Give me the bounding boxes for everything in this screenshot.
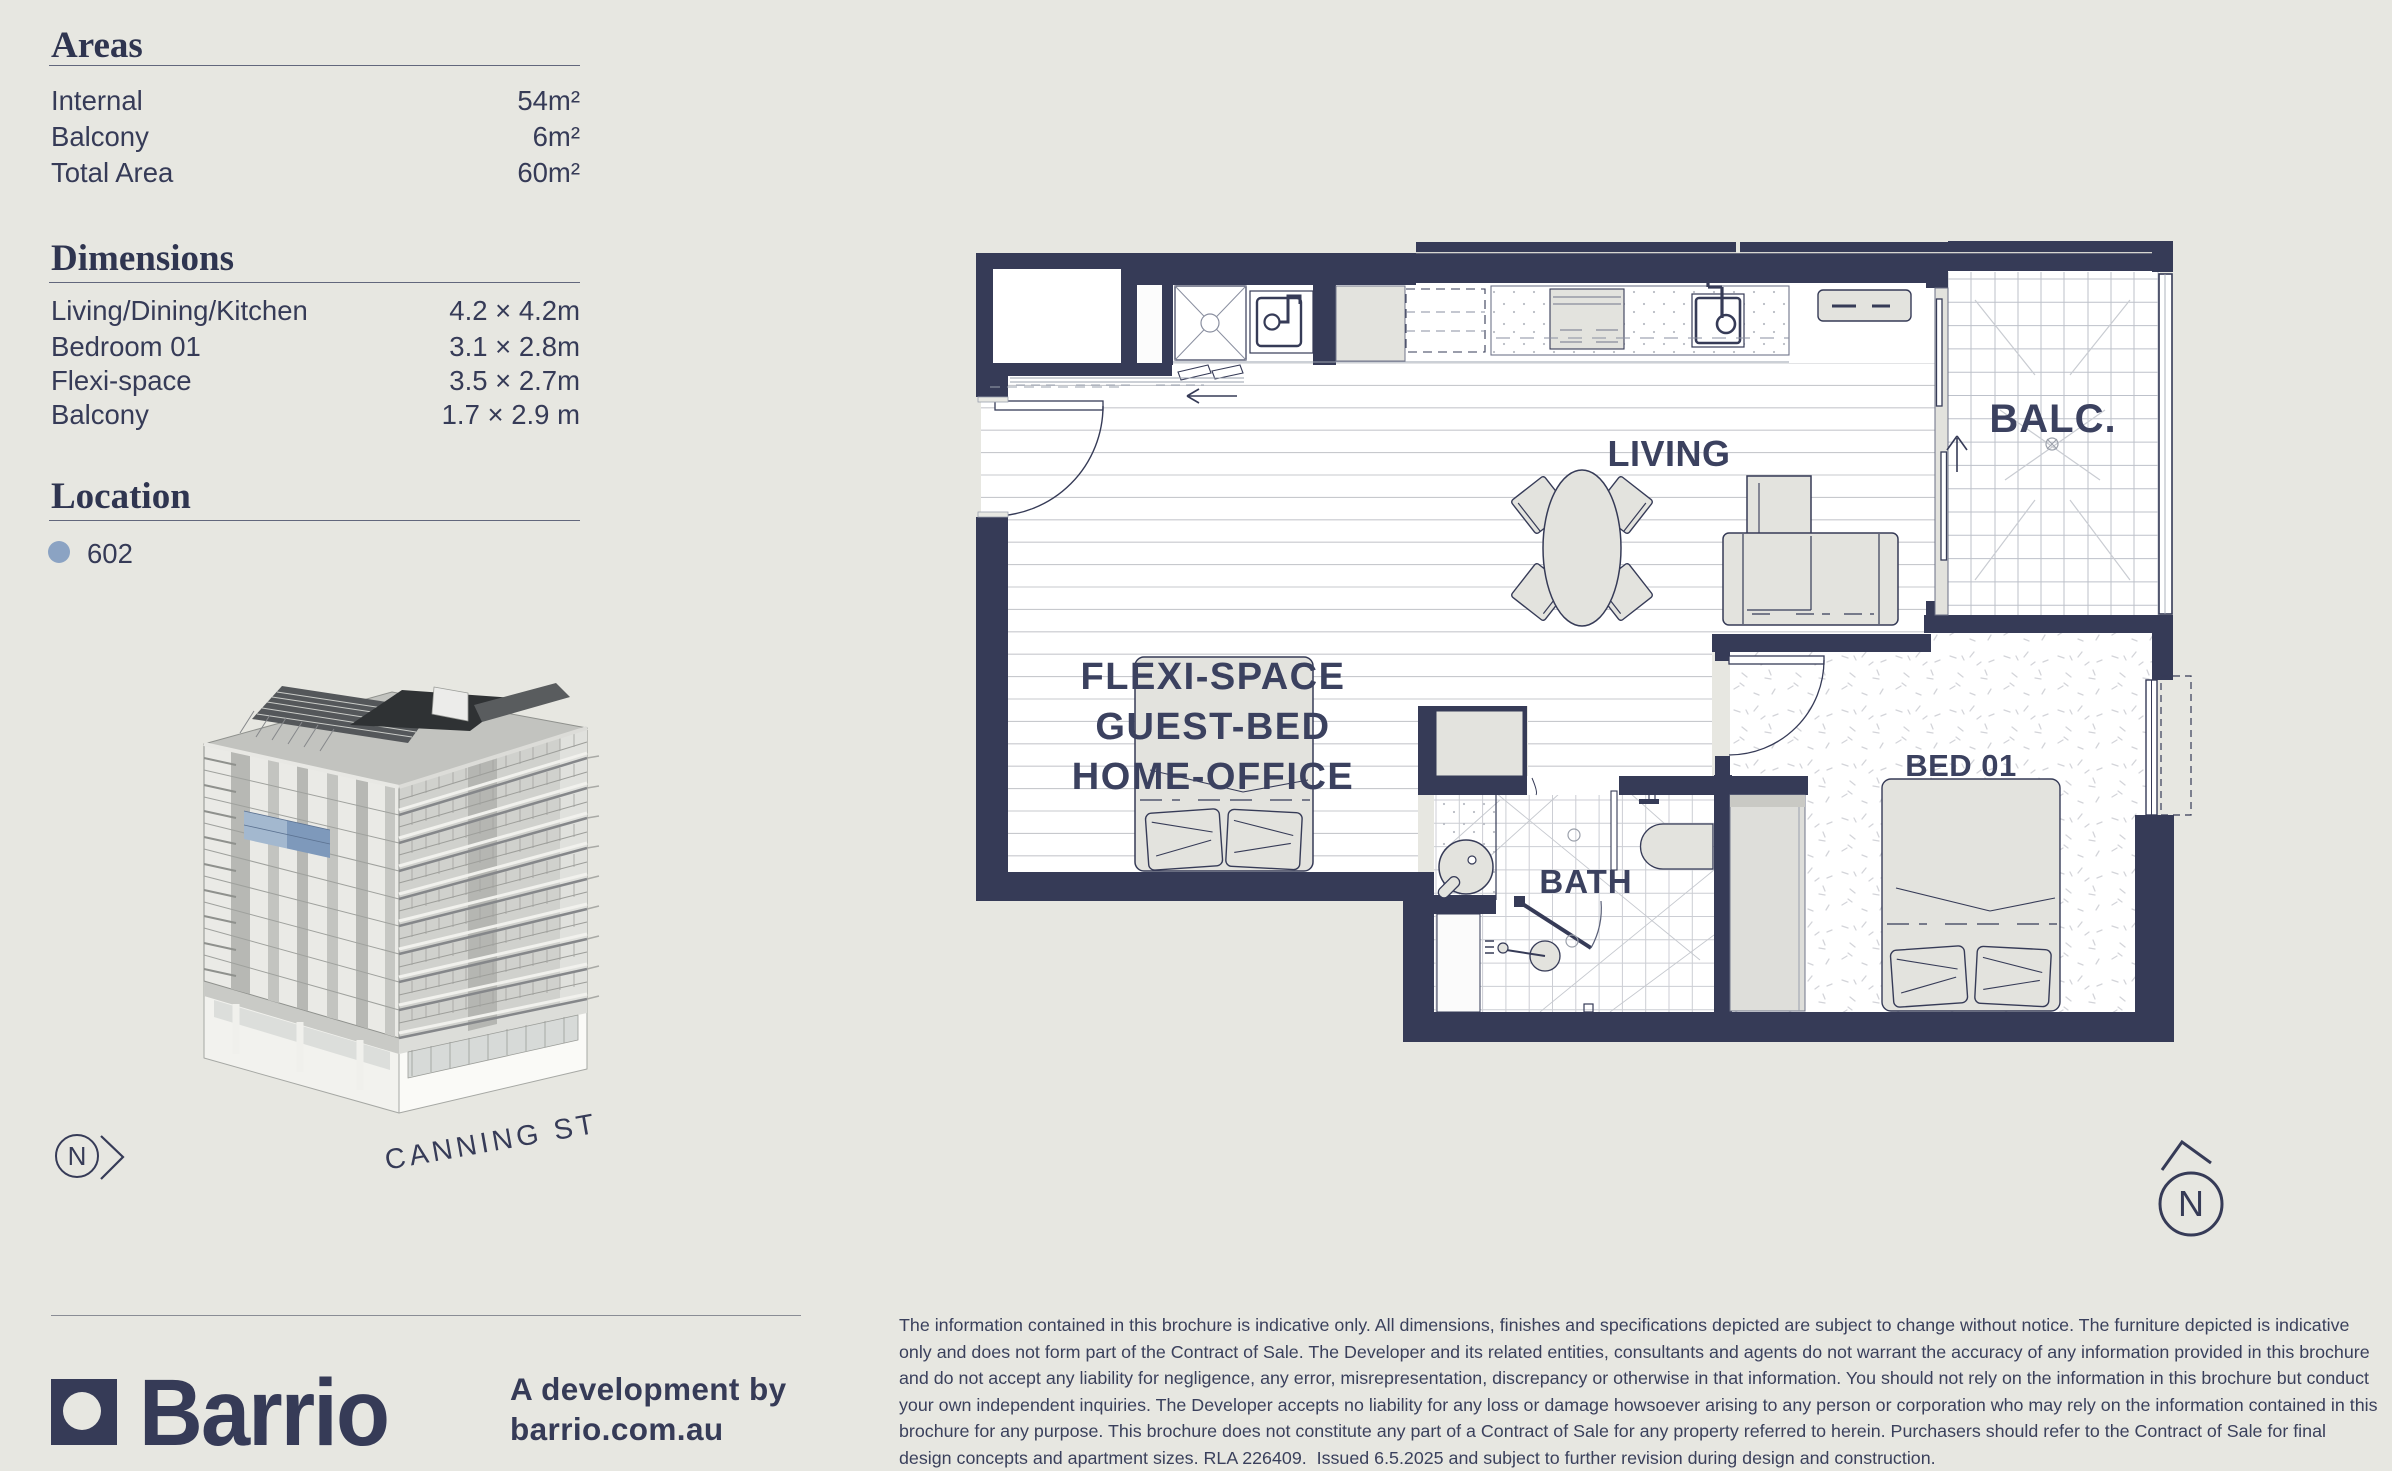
svg-text:BALC.: BALC.	[1989, 397, 2116, 441]
svg-text:N: N	[2178, 1183, 2204, 1224]
svg-text:LIVING: LIVING	[1607, 433, 1730, 474]
svg-text:HOME-OFFICE: HOME-OFFICE	[1072, 756, 1354, 798]
svg-text:CANNING ST: CANNING ST	[382, 1108, 600, 1177]
svg-text:BED 01: BED 01	[1905, 748, 2017, 783]
svg-text:BATH: BATH	[1539, 863, 1632, 900]
svg-text:GUEST-BED: GUEST-BED	[1095, 706, 1330, 748]
svg-text:N: N	[68, 1141, 87, 1171]
svg-text:FLEXI-SPACE: FLEXI-SPACE	[1081, 656, 1346, 698]
